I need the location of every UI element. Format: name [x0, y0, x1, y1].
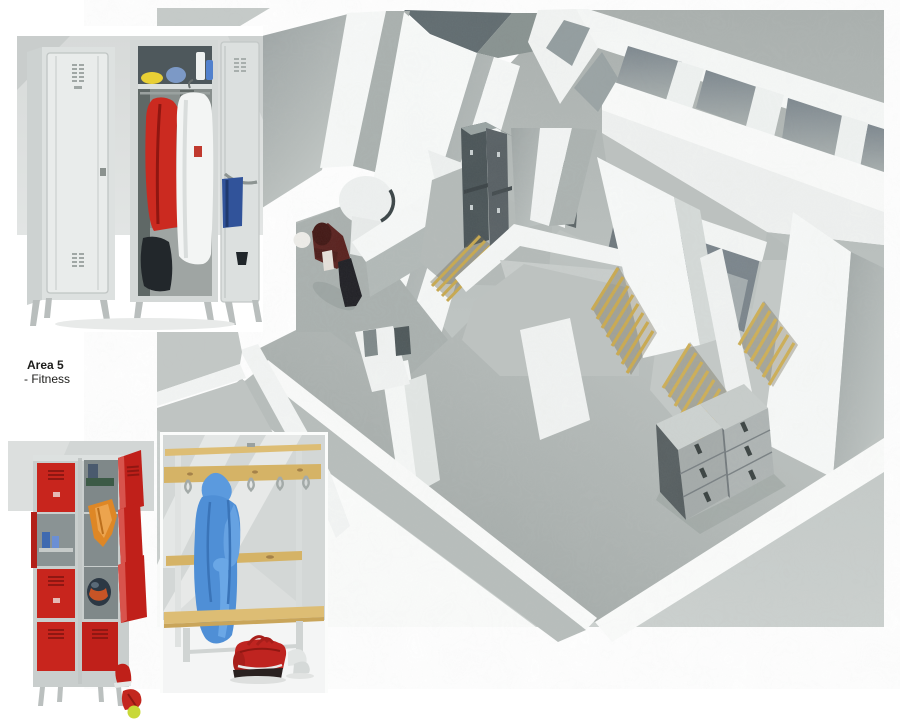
svg-text:- Fitness: - Fitness	[24, 372, 70, 386]
svg-text:Area 5: Area 5	[27, 358, 64, 372]
